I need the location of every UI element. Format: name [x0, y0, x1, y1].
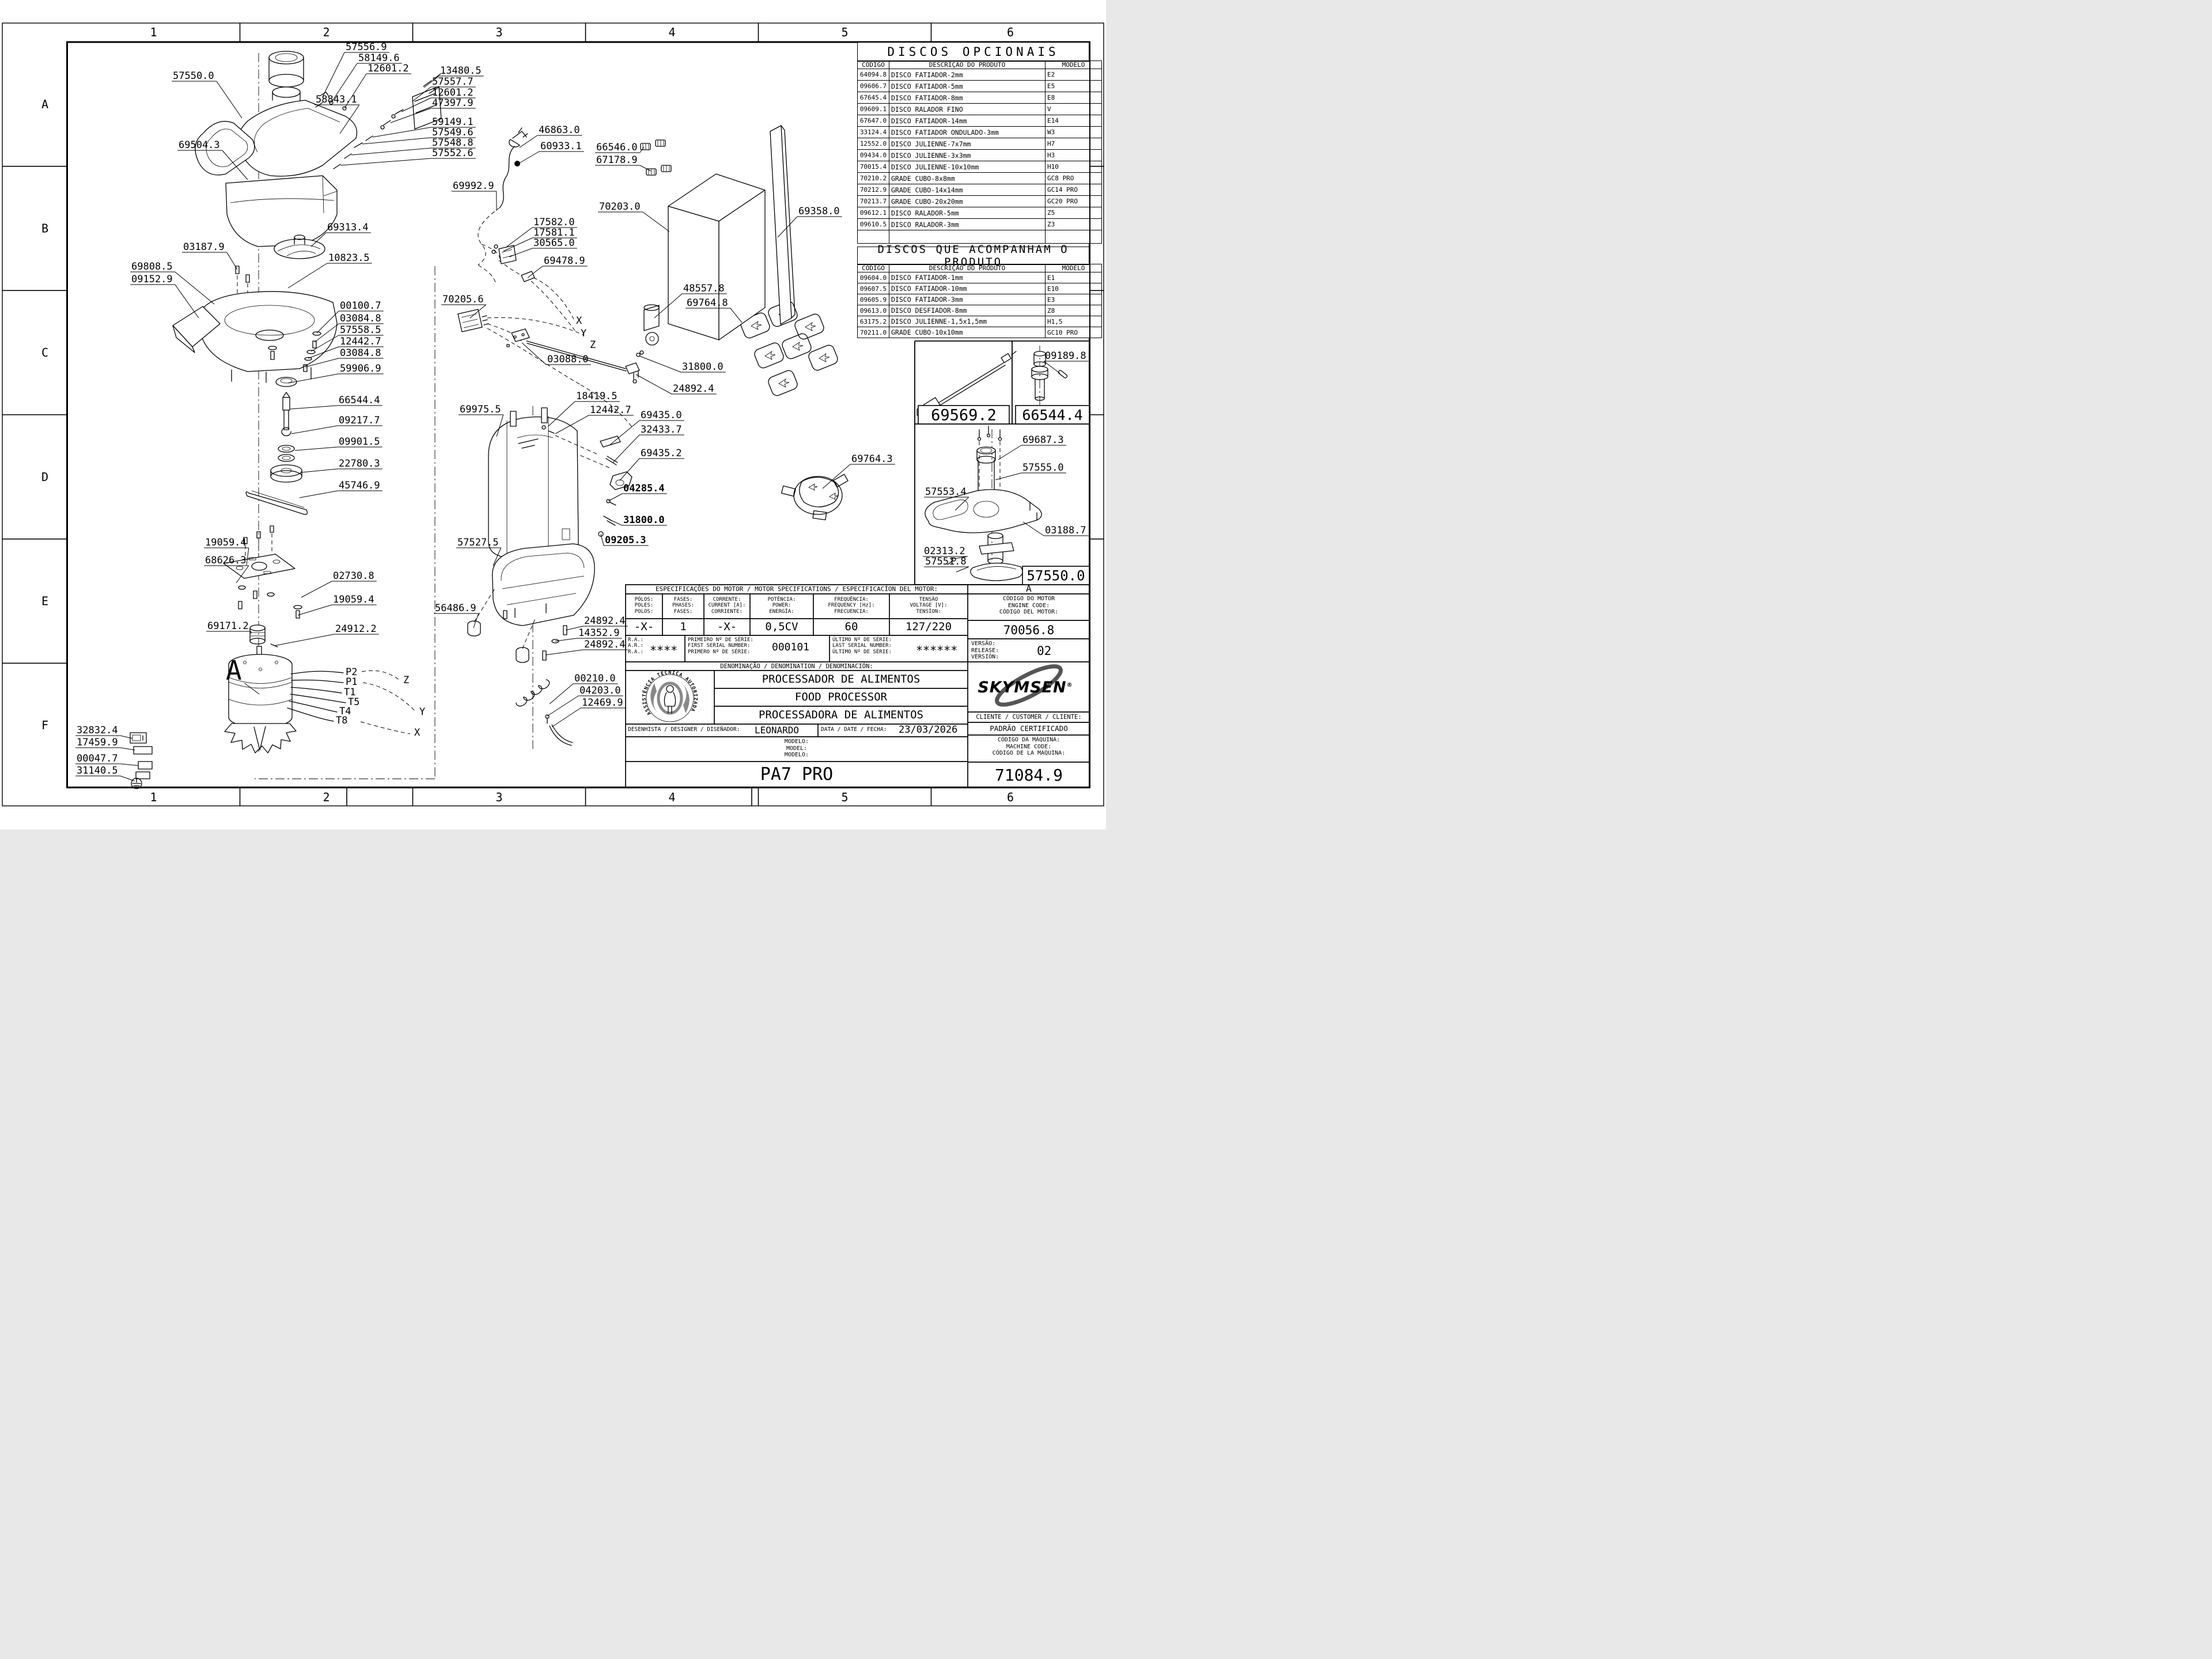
- part-number: 31800.0: [623, 514, 665, 526]
- table-header: CÓDIGO: [858, 61, 889, 69]
- last-serial-labels: ÚLTIMO Nº DE SÉRIE:LAST SERIAL NUMBER:ÚL…: [832, 637, 892, 655]
- part-number: 57553.4: [925, 486, 967, 498]
- table-row: 70213.7GRADE CUBO-20x20mmGC20 PRO: [858, 196, 1102, 207]
- part-number: 57550.0: [173, 70, 214, 82]
- terminal-connectors: [641, 140, 671, 175]
- part-number: 66544.4: [339, 395, 380, 406]
- part-number: 00210.0: [574, 673, 616, 684]
- part-number: 03084.8: [340, 313, 381, 324]
- part-number: 32832.4: [77, 725, 118, 736]
- leader-line: [288, 263, 327, 288]
- packing-box: [668, 174, 765, 340]
- zone-column-label: 3: [495, 25, 502, 39]
- drive-shaft: [283, 392, 290, 430]
- table-row: 70212.9GRADE CUBO-14x14mmGC14 PRO: [858, 184, 1102, 196]
- part-number: 09901.5: [339, 436, 380, 448]
- switch: [492, 245, 516, 264]
- certified-standard-label: PADRÃO CERTIFICADO: [990, 725, 1067, 733]
- leader-line: [120, 776, 135, 781]
- zone-column-label: 4: [668, 25, 675, 39]
- part-number: 02730.8: [333, 570, 374, 582]
- foam-panel: [770, 126, 795, 324]
- included-discs-title: DISCOS QUE ACOMPANHAM O PRODUTO: [857, 247, 1089, 265]
- leader-line: [608, 494, 622, 501]
- pulley: [271, 465, 302, 482]
- part-number: P1: [346, 676, 357, 688]
- spec-value-phases: 1: [680, 621, 686, 634]
- ra-labels: R.A.:A.R.:R.A.:: [628, 637, 643, 655]
- table-row: 09604.0DISCO FATIADOR-1mmE1: [858, 272, 1102, 283]
- part-number: 12601.2: [368, 63, 409, 74]
- part-number: X: [414, 727, 421, 738]
- designer-label: DESENHISTA / DESIGNER / DISEÑADOR:: [628, 727, 740, 733]
- version-labels: VERSÃO:RELEASE:VERSIÓN:: [971, 641, 999, 661]
- table-row: 67647.0DISCO FATIADOR-14mmE14: [858, 115, 1102, 127]
- part-number: 69808.5: [131, 261, 173, 272]
- leader-line: [300, 491, 338, 498]
- leader-line: [301, 581, 332, 597]
- part-number: 67178.9: [596, 154, 638, 166]
- part-number: Z: [403, 675, 409, 686]
- denomination-header: DENOMINAÇÃO / DENOMINATION / DENOMINACIÓ…: [720, 663, 873, 670]
- table-header: DESCRIÇÃO DO PRODUTO: [889, 61, 1046, 69]
- authorized-service-badge-logo: ASSISTÊNCIA TÉCNICA AUTORIZADA: [641, 669, 698, 722]
- date-label: DATA / DATE / FECHA:: [821, 727, 887, 733]
- drawing-sheet: ASSISTÊNCIA TÉCNICA AUTORIZADA 57550.069…: [0, 0, 1106, 829]
- part-number: 03188.7: [1045, 525, 1086, 536]
- part-number: 69687.3: [1022, 434, 1064, 446]
- part-number: 09205.3: [605, 535, 646, 546]
- leader-line: [518, 151, 539, 164]
- part-number: 22780.3: [339, 458, 380, 469]
- zone-column-label: 1: [150, 25, 157, 39]
- leader-line: [274, 634, 334, 646]
- revision-letter: A: [1026, 584, 1032, 594]
- part-number: 57549.6: [432, 127, 474, 138]
- table-row: 70210.2GRADE CUBO-8x8mmGC8 PRO: [858, 173, 1102, 184]
- part-number: 69313.4: [327, 222, 369, 233]
- spec-value-poles: -X-: [634, 621, 654, 634]
- leader-line: [351, 148, 431, 155]
- part-number: 60933.1: [540, 141, 582, 152]
- zone-column-label: 5: [841, 25, 848, 39]
- wiring-harness: [478, 207, 520, 282]
- denomination-pt: PROCESSADOR DE ALIMENTOS: [762, 673, 921, 686]
- leader-line: [522, 343, 546, 365]
- leader-line: [639, 356, 681, 372]
- leader-line: [995, 473, 1021, 480]
- capacitor: [644, 305, 659, 345]
- part-number: 24892.4: [584, 639, 626, 650]
- part-number: 30565.0: [533, 237, 575, 249]
- part-number: Y: [581, 328, 586, 339]
- part-number: 24912.2: [335, 623, 377, 635]
- part-number: 04285.4: [623, 483, 665, 494]
- leader-line: [120, 736, 132, 738]
- bearings: [278, 445, 294, 461]
- engine-code-value: 70056.8: [1003, 623, 1055, 637]
- leader-line: [998, 445, 1021, 460]
- belt: [246, 491, 307, 514]
- part-number: 47397.9: [432, 97, 474, 109]
- leader-line: [175, 285, 199, 318]
- part-number: 17581.1: [533, 227, 575, 238]
- optional-discs-table: DISCOS OPCIONAIS CÓDIGODESCRIÇÃO DO PROD…: [857, 42, 1089, 244]
- part-number: 12469.9: [582, 697, 623, 709]
- version-value: 02: [1037, 644, 1051, 658]
- leader-line: [609, 520, 622, 525]
- zone-row-label: A: [41, 97, 48, 111]
- part-number: 24892.4: [584, 615, 626, 627]
- part-number: 69569.2: [931, 407, 997, 425]
- plate-fasteners: [238, 586, 302, 618]
- engine-code-label: CÓDIGO DO MOTORENGINE CODE:CÓDIGO DEL MO…: [999, 596, 1058, 616]
- part-number: 12442.7: [590, 404, 631, 416]
- spec-value-power: 0,5CV: [765, 621, 798, 634]
- part-number: 70203.0: [599, 201, 641, 213]
- part-number: 09152.9: [131, 274, 173, 285]
- leader-line: [340, 158, 431, 165]
- empty-row: [858, 230, 1102, 244]
- part-number: 13480.5: [440, 65, 482, 77]
- spec-value-current: -X-: [717, 621, 737, 634]
- table-row: 33124.4DISCO FATIADOR ONDULADO-3mmW3: [858, 127, 1102, 138]
- part-number: 46863.0: [539, 124, 580, 136]
- part-number: 69358.0: [798, 206, 840, 217]
- bucket: [488, 408, 578, 558]
- part-number: 59149.1: [432, 116, 474, 128]
- part-number: 69764.3: [851, 453, 893, 465]
- part-number: 57548.8: [432, 137, 474, 149]
- last-serial-value: ******: [916, 644, 957, 657]
- denomination-en: FOOD PROCESSOR: [795, 691, 887, 704]
- part-number: 00100.7: [340, 300, 381, 312]
- spec-label-voltage: TENSÃOVOLTAGE [V]:TENSÍON:: [910, 597, 947, 615]
- part-number: 70205.6: [442, 294, 484, 305]
- part-number: 69478.9: [544, 255, 585, 267]
- part-number: 57527.5: [457, 537, 499, 548]
- leader-line: [290, 406, 338, 409]
- part-number: 69764.8: [687, 297, 728, 309]
- zone-column-label: 6: [1007, 25, 1014, 39]
- part-number: X: [576, 315, 582, 327]
- base-housing: [493, 544, 594, 626]
- lid-assembly: [195, 51, 357, 176]
- part-number: 66544.4: [1022, 407, 1082, 423]
- part-number: 03084.8: [340, 347, 381, 359]
- spec-value-frequency: 60: [845, 621, 858, 634]
- part-number: 57556.9: [346, 41, 387, 53]
- zone-column-label: 4: [668, 790, 675, 804]
- spec-label-frequency: FREQUÊNCIA:FREQUENCY [Hz]:FRECUENCIA:: [828, 597, 874, 615]
- bowl-base: [173, 291, 337, 382]
- table-row: 70015.4DISCO JULIENNE-10x10mmH10: [858, 161, 1102, 173]
- leader-line: [555, 638, 577, 641]
- part-number: 57558.5: [340, 324, 381, 336]
- leader-line: [323, 52, 344, 97]
- spec-label-power: POTÊNCIA:POWER:ENERGÍA:: [768, 597, 796, 615]
- leader-line: [547, 696, 578, 716]
- leader-line: [552, 708, 581, 727]
- spec-label-poles: PÓLOS:POLES:POLOS:: [635, 597, 654, 615]
- machine-code-label: CÓDIGO DA MÁQUINA:MACHINE CODE:CÓDIGO DE…: [993, 737, 1065, 757]
- leader-line: [503, 238, 532, 251]
- part-number: T8: [336, 715, 347, 726]
- leader-line: [120, 748, 135, 750]
- skymsen-logo-text: SKYMSEN®: [978, 679, 1073, 696]
- zone-row-label: C: [41, 346, 48, 359]
- leader-line: [546, 650, 583, 655]
- part-number: 31800.0: [682, 361, 724, 373]
- spec-label-current: CORRENTE:CURRENT [A]:CORRIENTE:: [708, 597, 745, 615]
- zone-column-label: 1: [150, 790, 157, 804]
- part-number: A: [226, 655, 242, 686]
- part-number: 00047.7: [77, 753, 118, 764]
- power-cord: [500, 128, 528, 207]
- machine-code-value: 71084.9: [995, 766, 1063, 785]
- zone-column-label: 6: [1007, 790, 1014, 804]
- spec-label-phases: FASES:PHASES:FASES:: [672, 597, 694, 615]
- part-number: 09217.7: [339, 415, 380, 426]
- optional-discs-title: DISCOS OPCIONAIS: [857, 42, 1089, 62]
- part-number: 57552.6: [432, 147, 474, 159]
- leader-line: [291, 426, 338, 434]
- part-number: 14352.9: [578, 627, 620, 639]
- table-row: 09606.7DISCO FATIADOR-5mmE5: [858, 81, 1102, 92]
- table-row: 09609.1DISCO RALADOR FINOV: [858, 104, 1102, 115]
- part-number: 45746.9: [339, 480, 380, 491]
- spring-clamp-set: [516, 680, 573, 745]
- part-number: 69975.5: [460, 404, 501, 415]
- leader-line: [120, 764, 138, 766]
- part-number: 32433.7: [641, 424, 682, 435]
- leader-line: [1023, 522, 1044, 536]
- leader-line: [643, 212, 669, 232]
- part-number: 02313.2: [924, 546, 965, 557]
- part-number: 57555.0: [1022, 462, 1064, 474]
- leader-line: [295, 447, 338, 450]
- part-number: 57557.7: [432, 76, 474, 88]
- leader-line: [298, 605, 332, 615]
- warning-labels: [130, 733, 152, 779]
- denomination-es: PROCESSADORA DE ALIMENTOS: [759, 709, 923, 722]
- part-number: 18419.5: [576, 391, 618, 402]
- part-number: 58149.6: [358, 52, 400, 64]
- leader-line: [956, 567, 969, 572]
- motor-spec-header: ESPECIFICAÇÕES DO MOTOR / MOTOR SPECIFIC…: [656, 586, 938, 593]
- part-number: 58843.1: [316, 94, 357, 105]
- table-row: 09605.9DISCO FATIADOR-3mmE3: [858, 294, 1102, 305]
- zone-column-label: 2: [323, 790, 329, 804]
- leader-line: [227, 252, 237, 270]
- table-row: 09607.5DISCO FATIADOR-10mmE10: [858, 283, 1102, 294]
- part-number: 69171.2: [207, 620, 249, 632]
- part-number: 69992.9: [453, 180, 494, 192]
- part-number: 69504.3: [179, 139, 220, 151]
- leader-line: [288, 374, 339, 383]
- leader-line: [217, 81, 242, 118]
- part-number: 03088.0: [547, 354, 589, 365]
- part-number: 19059.4: [205, 537, 247, 548]
- part-number: 04203.0: [579, 685, 621, 696]
- part-number: 24892.4: [673, 383, 714, 395]
- table-row: 63175.2DISCO JULIENNE-1,5x1,5mmH1,5: [858, 316, 1102, 327]
- leader-line: [550, 684, 573, 704]
- coupling: [250, 625, 278, 647]
- leader-line: [362, 138, 431, 144]
- cover-housing: [226, 176, 337, 247]
- model-labels: MODELO:MODEL:MODELO:: [785, 738, 809, 759]
- table-row: 64094.8DISCO FATIADOR-2mmE2: [858, 69, 1102, 81]
- part-number: 10823.5: [328, 252, 370, 264]
- included-discs-table: DISCOS QUE ACOMPANHAM O PRODUTO CÓDIGODE…: [857, 247, 1089, 338]
- table-row: 12552.0DISCO JULIENNE-7x7mmH7: [858, 138, 1102, 150]
- leader-line: [175, 272, 214, 304]
- zone-column-label: 2: [323, 25, 329, 39]
- customer-label: CLIENTE / CUSTOMER / CLIENTE:: [976, 714, 1081, 721]
- part-number: 31140.5: [77, 765, 118, 777]
- zone-column-label: 5: [841, 790, 848, 804]
- part-number: 69435.0: [641, 410, 682, 421]
- table-header: CÓDIGO: [858, 264, 889, 272]
- part-number: 59906.9: [340, 363, 381, 374]
- part-number: 03187.9: [183, 241, 225, 253]
- part-number: 17582.0: [533, 217, 575, 228]
- part-number: 66546.0: [596, 142, 638, 153]
- first-serial-labels: PRIMEIRO Nº DE SÉRIE:FIRST SERIAL NUMBER…: [688, 637, 753, 655]
- model-value: PA7 PRO: [760, 765, 833, 785]
- zone-column-label: 3: [495, 790, 502, 804]
- brush-rotor: [782, 474, 848, 520]
- part-number: 12442.7: [340, 336, 381, 347]
- leader-line: [636, 374, 672, 394]
- part-number: Y: [419, 706, 425, 718]
- table-row: 09610.5DISCO RALADOR-3mmZ3: [858, 219, 1102, 230]
- table-row: 09612.1DISCO RALADOR-5mmZ5: [858, 207, 1102, 219]
- table-row: 09434.0DISCO JULIENNE-3x3mmH3: [858, 150, 1102, 161]
- part-number: 57550.0: [1027, 568, 1085, 584]
- part-number: 69435.2: [641, 448, 682, 459]
- part-number: 56486.9: [435, 603, 476, 614]
- connector-69478: [521, 271, 576, 332]
- spec-value-voltage: 127/220: [906, 621, 952, 634]
- zone-row-label: D: [41, 470, 48, 484]
- leader-line: [520, 135, 537, 147]
- part-number: 09189.8: [1045, 350, 1086, 362]
- date-value: 23/03/2026: [899, 725, 957, 736]
- part-number: 19059.4: [333, 594, 374, 605]
- ra-value: ****: [650, 644, 677, 657]
- zone-row-label: F: [41, 718, 48, 732]
- table-row: 67645.4DISCO FATIADOR-8mmE8: [858, 92, 1102, 104]
- table-row: 70211.0GRADE CUBO-10x10mmGC10 PRO: [858, 327, 1102, 338]
- leader-line: [640, 165, 651, 171]
- first-serial-value: 000101: [772, 642, 809, 654]
- part-number: 17459.9: [77, 737, 118, 748]
- part-number: 68626.3: [205, 555, 247, 566]
- leader-line: [609, 421, 639, 445]
- part-number: 57551.8: [925, 556, 967, 567]
- part-number: Z: [590, 339, 596, 351]
- zone-row-label: E: [41, 594, 48, 608]
- zone-row-label: B: [41, 222, 48, 236]
- table-header: MODELO: [1046, 61, 1102, 69]
- table-row: 09613.0DISCO DESFIADOR-8mmZ8: [858, 305, 1102, 316]
- designer-value: LEONARDO: [755, 725, 799, 736]
- part-number: 48557.8: [683, 283, 725, 294]
- leader-line: [302, 469, 338, 472]
- part-number: 12601.2: [432, 87, 474, 99]
